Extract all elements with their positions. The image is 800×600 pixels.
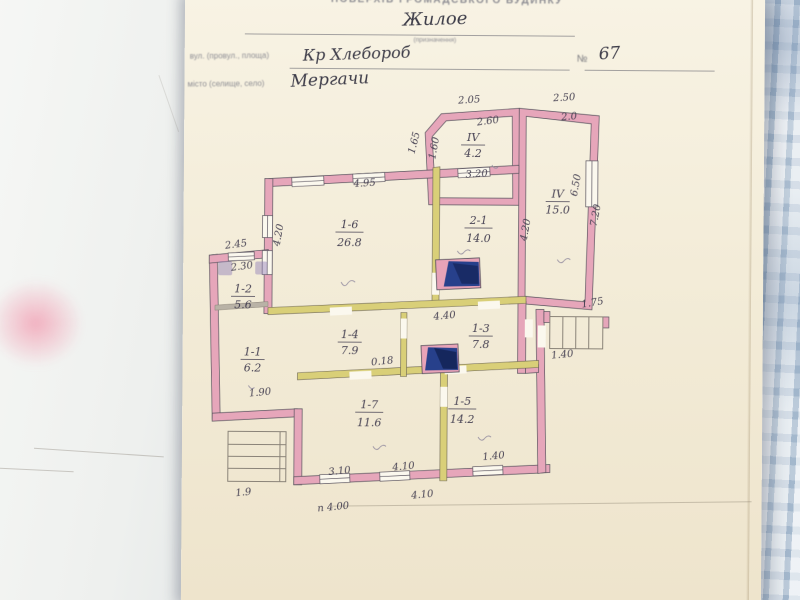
pink-ink-smudge: [0, 279, 84, 368]
street-handwritten-value: Кр Хлебороб: [302, 43, 410, 65]
dim-label: 2.60: [475, 115, 500, 129]
dim-label: п 4.00: [317, 500, 350, 514]
door-gap: [401, 318, 407, 338]
room-label-area: 15.0: [545, 204, 570, 217]
dim-label: 2.30: [229, 260, 254, 274]
room-label-area: 14.0: [466, 232, 491, 245]
street-field-label: вул. (провул., площа): [190, 51, 269, 61]
stove-room-2-1: [436, 258, 481, 290]
page-fold-edge: [746, 0, 753, 600]
floor-plan-drawing: IV 4.2 IV 15.0 1-6 26.8 2-1 14.0 1-2 5.6…: [189, 85, 624, 524]
door-gap: [538, 325, 546, 347]
left-porch-steps: [228, 431, 286, 481]
pencil-mark: [557, 258, 570, 262]
dim-label: 4.20: [271, 223, 286, 248]
room-label-area: 26.8: [336, 236, 362, 249]
porches: [228, 314, 603, 484]
room-label-id: 1-7: [360, 398, 378, 411]
bottom-left-corner-wall: [294, 409, 303, 485]
dim-label: 1.65: [407, 131, 423, 155]
room-label-area: 7.8: [472, 338, 490, 351]
pencil-mark: [341, 280, 355, 285]
door-gap: [349, 371, 371, 380]
door-gap: [440, 387, 447, 407]
dim-label: 3.20: [465, 168, 489, 180]
underlying-paper-sheet: [0, 0, 208, 600]
room-label-id: IV: [466, 131, 480, 144]
room-label-id: 1-5: [453, 395, 471, 408]
door-openings: [329, 272, 546, 408]
printed-form-title: ПОВЕРХІВ ГРОМАДСЬКОГО БУДИНКУ: [267, 0, 627, 7]
pencil-mark: [373, 445, 386, 449]
room-label-id: 1-6: [341, 218, 359, 231]
room-label-id: 1-1: [244, 345, 262, 358]
room-label-id: 1-2: [234, 282, 252, 295]
room-label-id: IV: [551, 188, 565, 201]
dim-label: 2.0: [560, 111, 578, 123]
dim-label: 1.90: [248, 386, 272, 399]
door-gap: [478, 301, 500, 310]
annex-left-wall: [208, 254, 221, 419]
room-label-area: 4.2: [463, 147, 482, 160]
annex-bottom-wall: [212, 408, 297, 422]
dim-label: 4.10: [410, 489, 435, 502]
dim-label: 2.45: [223, 238, 248, 252]
pencil-mark: [478, 436, 491, 440]
door-gap: [330, 307, 352, 316]
dim-label: 2.50: [552, 92, 577, 104]
pencil-line: [158, 75, 179, 132]
house-number-label: №: [577, 54, 588, 65]
dim-label: 1.40: [482, 450, 506, 463]
purpose-handwritten-value: Жилое: [335, 6, 536, 33]
smudge: [255, 261, 267, 274]
room-label-area: 7.9: [341, 344, 359, 357]
dim-label: 1.75: [581, 296, 605, 311]
room-label-area: 14.2: [450, 413, 475, 426]
room-label-area: 11.6: [357, 416, 382, 429]
porch-wall-nub: [544, 311, 550, 322]
dim-label: 4.40: [432, 310, 457, 323]
room-label-id: 1-3: [472, 322, 490, 335]
door-gap: [525, 319, 533, 337]
dim-label: 1.9: [235, 487, 253, 500]
room-label-area: 5.6: [234, 298, 252, 311]
partition-1-7-1-5: [440, 363, 448, 481]
masonry-walls: [208, 106, 611, 487]
dim-label: 4.95: [352, 178, 376, 190]
room-label-id: 2-1: [469, 214, 488, 227]
dim-label: 0.18: [371, 355, 394, 368]
house-number-value: 67: [598, 43, 621, 64]
pencil-line: [34, 448, 164, 458]
dim-label: 1.40: [551, 349, 575, 362]
porch-wall-nub: [603, 317, 609, 328]
photo-of-floor-plan-document: ПОВЕРХІВ ГРОМАДСЬКОГО БУДИНКУ Жилое (при…: [0, 0, 800, 600]
stove-hall: [421, 344, 459, 374]
corridor-bottom-partition: [297, 359, 538, 382]
room-label-area: 6.2: [244, 361, 262, 374]
technical-passport-sheet: ПОВЕРХІВ ГРОМАДСЬКОГО БУДИНКУ Жилое (при…: [181, 0, 765, 600]
right-porch-steps: [550, 317, 603, 349]
pencil-mark: [457, 250, 470, 254]
dim-label: 6.50: [569, 173, 584, 198]
dim-label: 4.10: [391, 460, 416, 473]
room-label-id: 1-4: [341, 328, 359, 341]
pencil-line: [0, 467, 74, 472]
number-underline: [585, 70, 715, 72]
dim-label: 2.05: [457, 94, 481, 106]
dim-label: 3.10: [328, 465, 352, 478]
